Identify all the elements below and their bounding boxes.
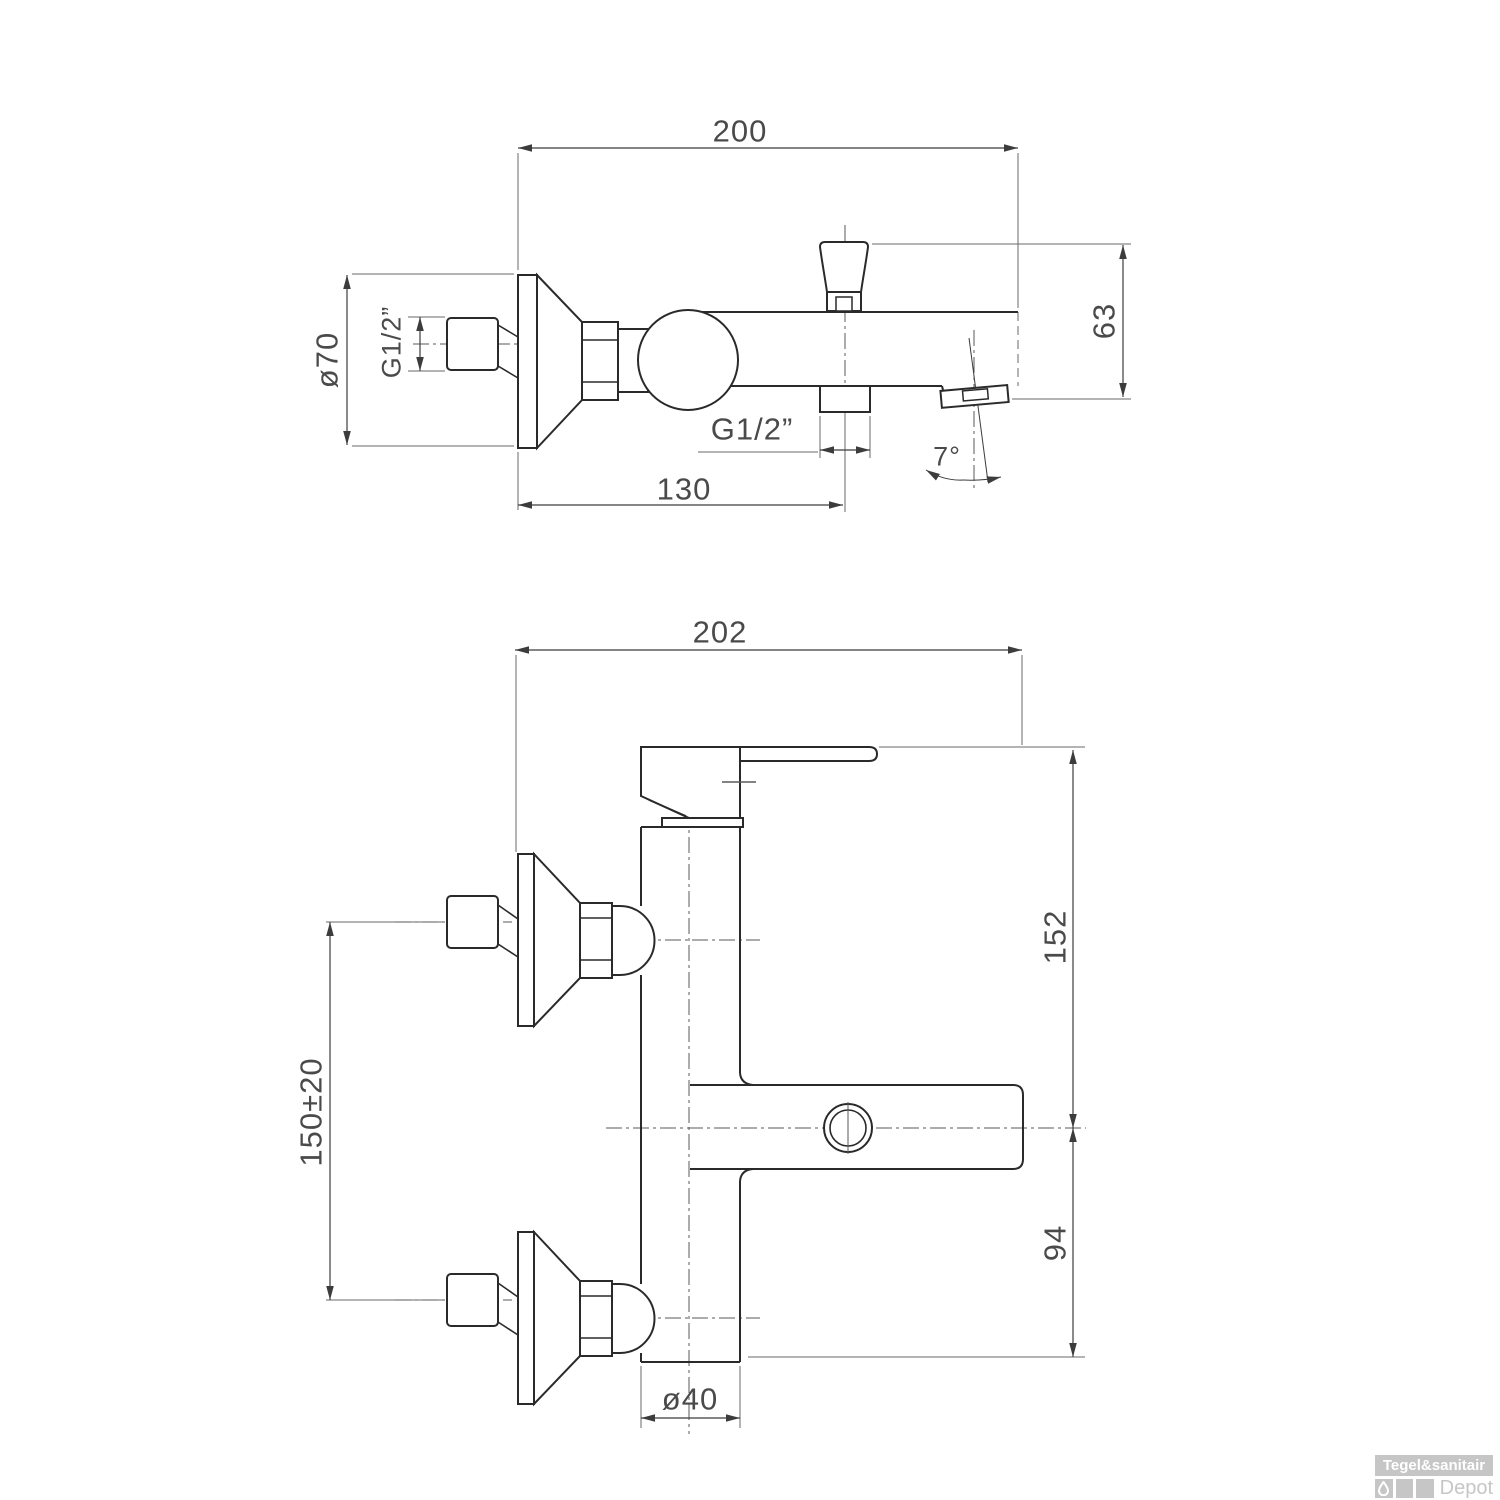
top-spout-aerator bbox=[940, 385, 1008, 408]
brand-name: Tegel&sanitair bbox=[1375, 1455, 1493, 1476]
dim-wall-to-outlet-label: 130 bbox=[657, 474, 712, 505]
logo-tile bbox=[1416, 1479, 1434, 1498]
front-body-column bbox=[641, 827, 753, 1362]
brand-logo: Tegel&sanitair Depot bbox=[1375, 1455, 1493, 1498]
top-wall-nipple bbox=[447, 318, 518, 378]
logo-tile bbox=[1396, 1479, 1414, 1498]
top-valve-body bbox=[638, 310, 738, 410]
top-hose-outlet bbox=[820, 386, 870, 412]
front-lower-connection bbox=[447, 1232, 655, 1404]
water-drop-icon bbox=[1377, 1481, 1390, 1496]
dim-connection-centers-label: 150±20 bbox=[296, 1057, 327, 1166]
dim-spout-angle-label: 7° bbox=[933, 444, 961, 471]
front-upper-connection bbox=[447, 854, 655, 1026]
brand-suffix: Depot bbox=[1437, 1479, 1493, 1498]
dim-body-diameter-label: ø40 bbox=[662, 1384, 718, 1415]
front-view bbox=[326, 650, 1086, 1434]
top-diverter-knob bbox=[820, 242, 868, 311]
faucet-dimension-drawing bbox=[0, 0, 1500, 1500]
dim-wall-thread-label: G1/2” bbox=[379, 306, 406, 379]
dim-outlet-thread-label: G1/2” bbox=[711, 414, 794, 445]
technical-drawing-page: 200 63 ø70 G1/2” G1/2” 130 7° 202 152 94… bbox=[0, 0, 1500, 1500]
dim-total-width-top-label: 200 bbox=[713, 116, 768, 147]
front-outlet-hole bbox=[824, 1102, 872, 1154]
dim-handle-to-spout-label: 152 bbox=[1040, 910, 1071, 965]
dim-spout-height-label: 63 bbox=[1089, 303, 1120, 339]
dim-total-width-front-label: 202 bbox=[693, 617, 748, 648]
logo-drop-tile bbox=[1375, 1479, 1393, 1498]
top-escutcheon bbox=[518, 275, 582, 448]
front-lever-handle bbox=[641, 747, 877, 827]
top-view-side-projection bbox=[347, 148, 1131, 512]
dim-escutcheon-label: ø70 bbox=[312, 332, 343, 388]
dim-spout-to-bottom-label: 94 bbox=[1040, 1225, 1071, 1261]
